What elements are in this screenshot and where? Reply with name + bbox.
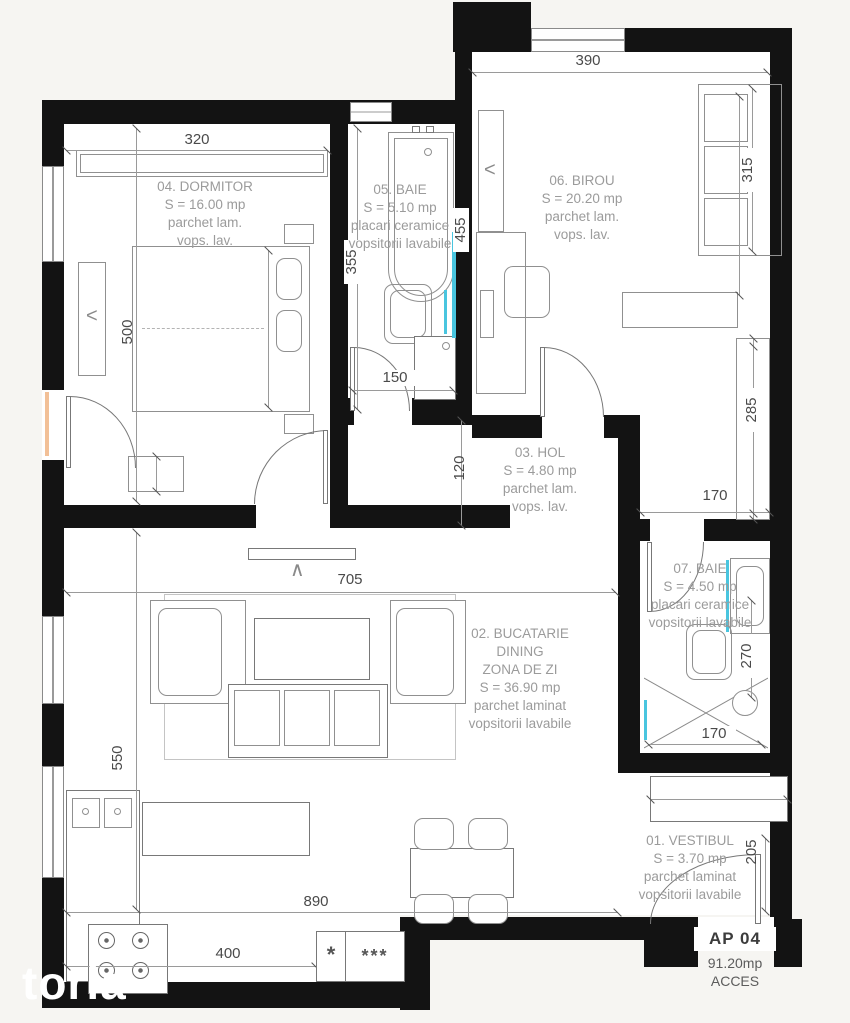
room-finish: vopsitorii lavabile xyxy=(590,886,790,904)
shower-drain xyxy=(732,690,758,716)
pillow xyxy=(276,310,302,352)
room-finish: parchet lam. xyxy=(440,480,640,498)
room-name: 03. HOL xyxy=(440,444,640,462)
dim-line xyxy=(472,72,768,73)
wall xyxy=(330,100,348,528)
room-finish: parchet lam. xyxy=(482,208,682,226)
room-area: S = 20.20 mp xyxy=(482,190,682,208)
room-name: 05. BAIE xyxy=(300,181,500,199)
unit-id: AP 04 xyxy=(694,929,776,949)
room-name: 06. BIROU xyxy=(482,172,682,190)
burner-icon xyxy=(132,962,149,979)
three-star-symbol: *** xyxy=(345,946,405,967)
closet-shelf-line xyxy=(650,799,788,800)
dim-label: 170 xyxy=(693,488,737,504)
wall xyxy=(42,100,472,124)
dim-label: 400 xyxy=(206,946,250,962)
dining-table xyxy=(410,848,514,898)
room-finish: vopsitorii lavabile xyxy=(420,715,620,733)
room-area: S = 16.00 mp xyxy=(105,196,305,214)
room-name: 07. BAIE xyxy=(600,560,800,578)
wall xyxy=(774,919,802,967)
room-area: S = 4.50 mp xyxy=(600,578,800,596)
nightstand xyxy=(284,414,314,434)
tv-cabinet xyxy=(622,292,738,328)
wall xyxy=(42,460,64,618)
room-finish: placari ceramice xyxy=(300,217,500,235)
wall xyxy=(42,704,64,768)
dim-line xyxy=(648,744,762,745)
dim-line xyxy=(739,96,740,296)
room-label-baie7: 07. BAIE S = 4.50 mp placari ceramice vo… xyxy=(600,560,800,632)
wall xyxy=(42,262,64,392)
coffee-table xyxy=(254,618,370,680)
room-finish: vops. lav. xyxy=(440,498,640,516)
dim-line xyxy=(352,390,454,391)
pillow xyxy=(276,258,302,300)
room-finish: vopsitorii lavabile xyxy=(600,614,800,632)
room-finish: parchet lam. xyxy=(105,214,305,232)
wall xyxy=(64,505,256,528)
room-finish: parchet laminat xyxy=(590,868,790,886)
dim-label: 705 xyxy=(328,572,372,588)
drain xyxy=(424,148,432,156)
room-label-hol: 03. HOL S = 4.80 mp parchet lam. vops. l… xyxy=(440,444,640,516)
floor-plan: < < ∧ xyxy=(0,0,850,1023)
toilet-inner xyxy=(390,290,426,338)
dim-label: 270 xyxy=(739,634,755,678)
pipe-accent xyxy=(444,290,447,334)
dining-chair xyxy=(468,818,508,850)
monitor xyxy=(480,290,494,338)
window xyxy=(350,102,392,122)
room-finish: placari ceramice xyxy=(600,596,800,614)
dim-label: 550 xyxy=(110,736,126,780)
room-name: 01. VESTIBUL xyxy=(590,832,790,850)
room-area: S = 36.90 mp xyxy=(420,679,620,697)
faucet xyxy=(412,126,420,133)
wall xyxy=(704,519,770,541)
sofa-cushion xyxy=(284,690,330,746)
room-label-bucatarie: 02. BUCATARIE DINING ZONA DE ZI S = 36.9… xyxy=(420,625,620,733)
washing-machine-knob xyxy=(442,342,450,350)
window xyxy=(42,166,64,262)
faucet xyxy=(426,126,434,133)
kitchen-island xyxy=(142,802,310,856)
balcony-door-frame xyxy=(45,392,49,456)
dim-label: 285 xyxy=(744,388,760,432)
door-leaf xyxy=(540,347,545,417)
dim-label: 170 xyxy=(692,726,736,742)
dim-label: 320 xyxy=(175,132,219,148)
sofa-cushion xyxy=(334,690,380,746)
door-leaf xyxy=(350,347,355,411)
wall xyxy=(618,753,792,773)
desk-chair xyxy=(504,266,550,318)
dim-line xyxy=(66,912,618,913)
armchair-cushion xyxy=(158,608,222,696)
sink-drain xyxy=(114,808,121,815)
dim-label: 500 xyxy=(120,310,136,354)
sink-drain xyxy=(82,808,89,815)
burner-icon xyxy=(132,932,149,949)
dim-label: 315 xyxy=(740,148,756,192)
door-leaf xyxy=(66,396,71,468)
bed-fold-line xyxy=(142,328,264,329)
one-star-symbol: * xyxy=(316,942,346,968)
room-finish: vops. lav. xyxy=(482,226,682,244)
wall xyxy=(453,2,531,30)
bed-headboard-line xyxy=(268,250,269,408)
dim-label: 390 xyxy=(566,53,610,69)
room-area: S = 4.80 mp xyxy=(440,462,640,480)
radiator-mark-icon: < xyxy=(86,306,98,326)
window xyxy=(531,28,625,52)
sofa-cushion xyxy=(234,690,280,746)
room-label-baie5: 05. BAIE S = 5.10 mp placari ceramice vo… xyxy=(300,181,500,253)
room-area: S = 3.70 mp xyxy=(590,850,790,868)
room-name: DINING xyxy=(420,643,620,661)
sofa-cushion xyxy=(704,94,748,142)
dim-line xyxy=(66,150,328,151)
room-finish: vops. lav. xyxy=(105,232,305,250)
room-label-birou: 06. BIROU S = 20.20 mp parchet lam. vops… xyxy=(482,172,682,244)
unit-area: 91.20mp xyxy=(694,955,776,971)
dresser-divider xyxy=(156,456,157,492)
wall xyxy=(640,519,650,541)
tv-mount-icon: ∧ xyxy=(290,560,305,580)
room-finish: parchet laminat xyxy=(420,697,620,715)
wardrobe-inner xyxy=(80,154,324,173)
dining-chair xyxy=(414,818,454,850)
sofa-cushion xyxy=(704,198,748,246)
dim-line xyxy=(136,532,137,910)
room-name: 02. BUCATARIE xyxy=(420,625,620,643)
room-label-dormitor: 04. DORMITOR S = 16.00 mp parchet lam. v… xyxy=(105,178,305,250)
room-finish: vopsitorii lavabile xyxy=(300,235,500,253)
dim-label: 890 xyxy=(294,894,338,910)
room-name: ZONA DE ZI xyxy=(420,661,620,679)
window xyxy=(42,616,64,704)
pipe-accent xyxy=(644,700,647,740)
window xyxy=(42,766,64,878)
dining-chair xyxy=(414,894,454,924)
wall xyxy=(644,919,698,967)
room-area: S = 5.10 mp xyxy=(300,199,500,217)
room-label-vestibul: 01. VESTIBUL S = 3.70 mp parchet laminat… xyxy=(590,832,790,904)
dim-line xyxy=(66,592,616,593)
wall xyxy=(623,28,792,52)
dim-label: 150 xyxy=(373,370,417,386)
toilet-inner xyxy=(692,630,726,674)
wall xyxy=(472,415,542,438)
door-leaf xyxy=(323,430,328,504)
dining-chair xyxy=(468,894,508,924)
room-name: 04. DORMITOR xyxy=(105,178,305,196)
unit-access: ACCES xyxy=(694,973,776,989)
burner-icon xyxy=(98,932,115,949)
watermark: toria xyxy=(22,956,127,1010)
